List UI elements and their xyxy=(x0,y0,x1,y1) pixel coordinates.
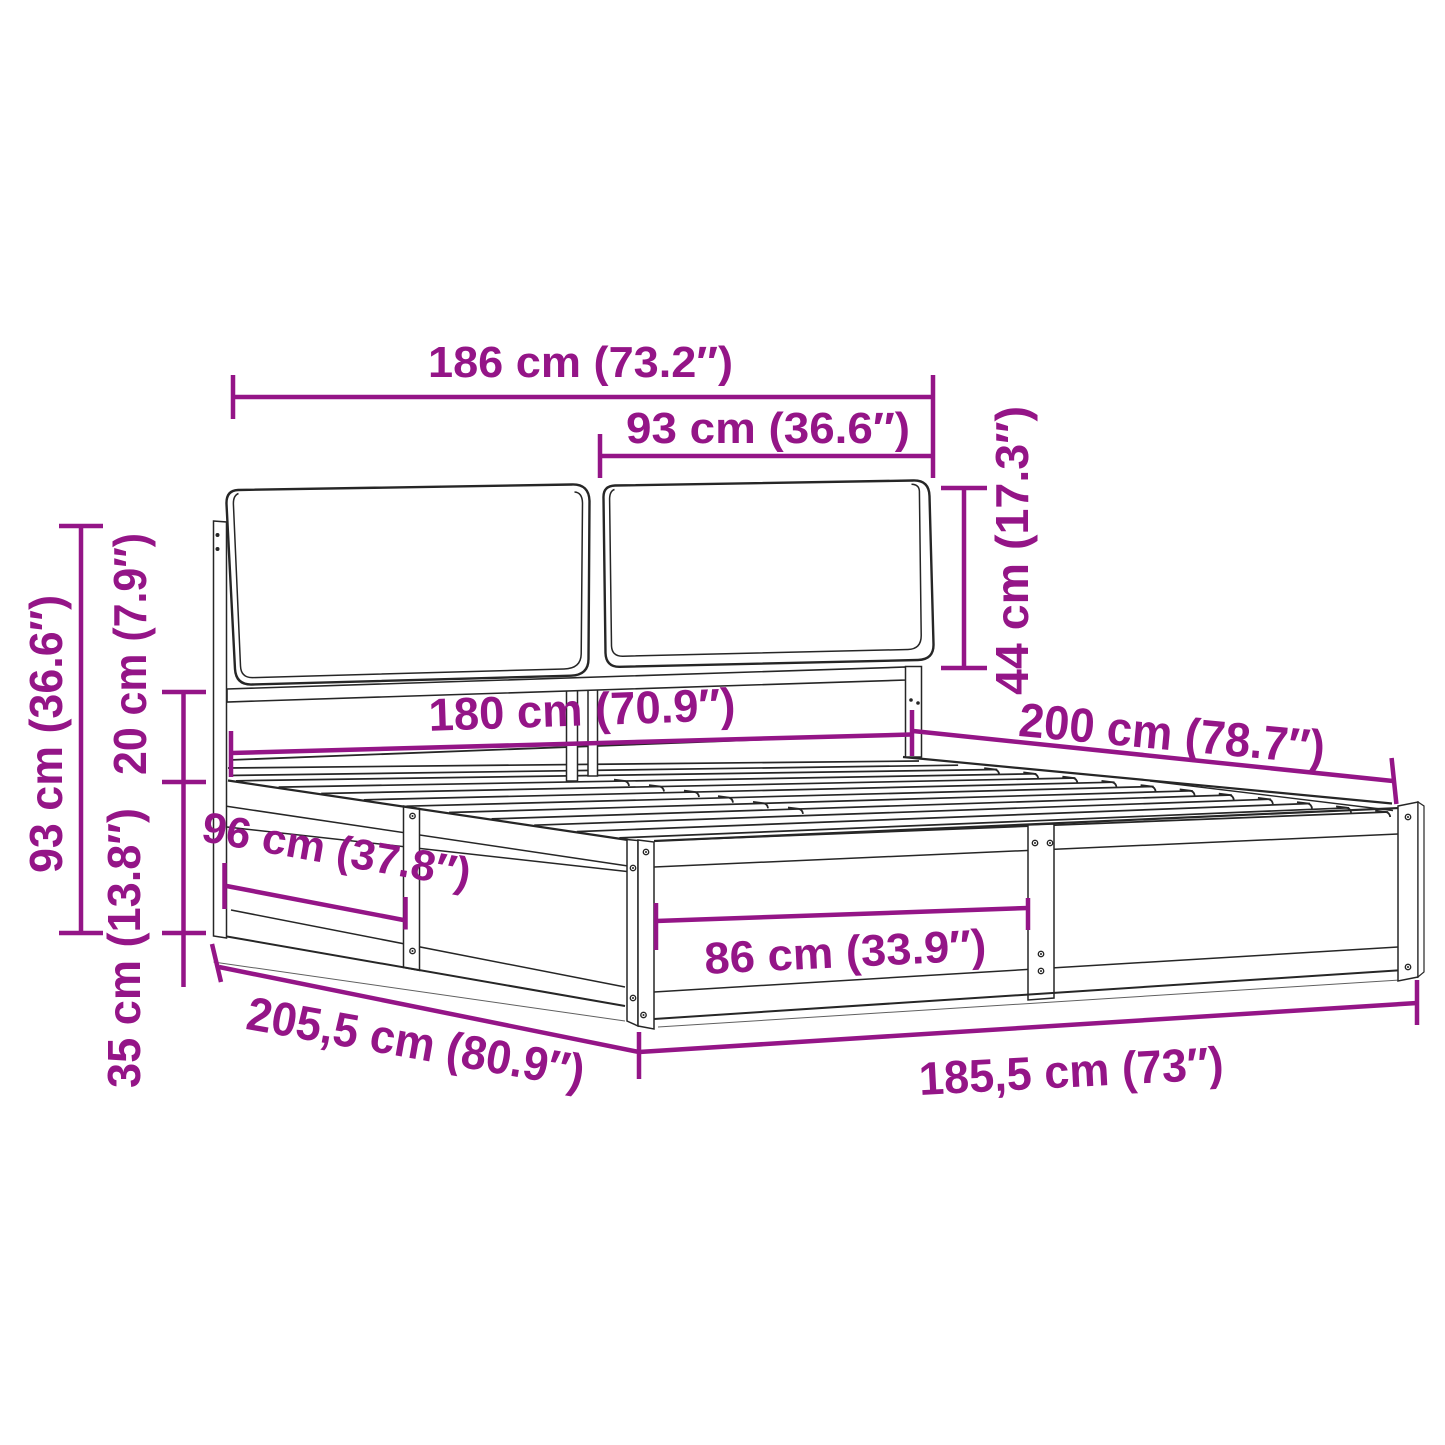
svg-text:93 cm (36.6″): 93 cm (36.6″) xyxy=(626,405,910,453)
svg-text:35 cm (13.8″): 35 cm (13.8″) xyxy=(98,808,150,1088)
svg-text:44 cm (17.3″): 44 cm (17.3″) xyxy=(986,406,1038,695)
svg-text:20 cm (7.9″): 20 cm (7.9″) xyxy=(104,533,156,775)
svg-text:186 cm (73.2″): 186 cm (73.2″) xyxy=(428,339,733,387)
svg-text:180 cm (70.9″): 180 cm (70.9″) xyxy=(428,678,737,741)
svg-text:93 cm (36.6″): 93 cm (36.6″) xyxy=(20,595,72,873)
